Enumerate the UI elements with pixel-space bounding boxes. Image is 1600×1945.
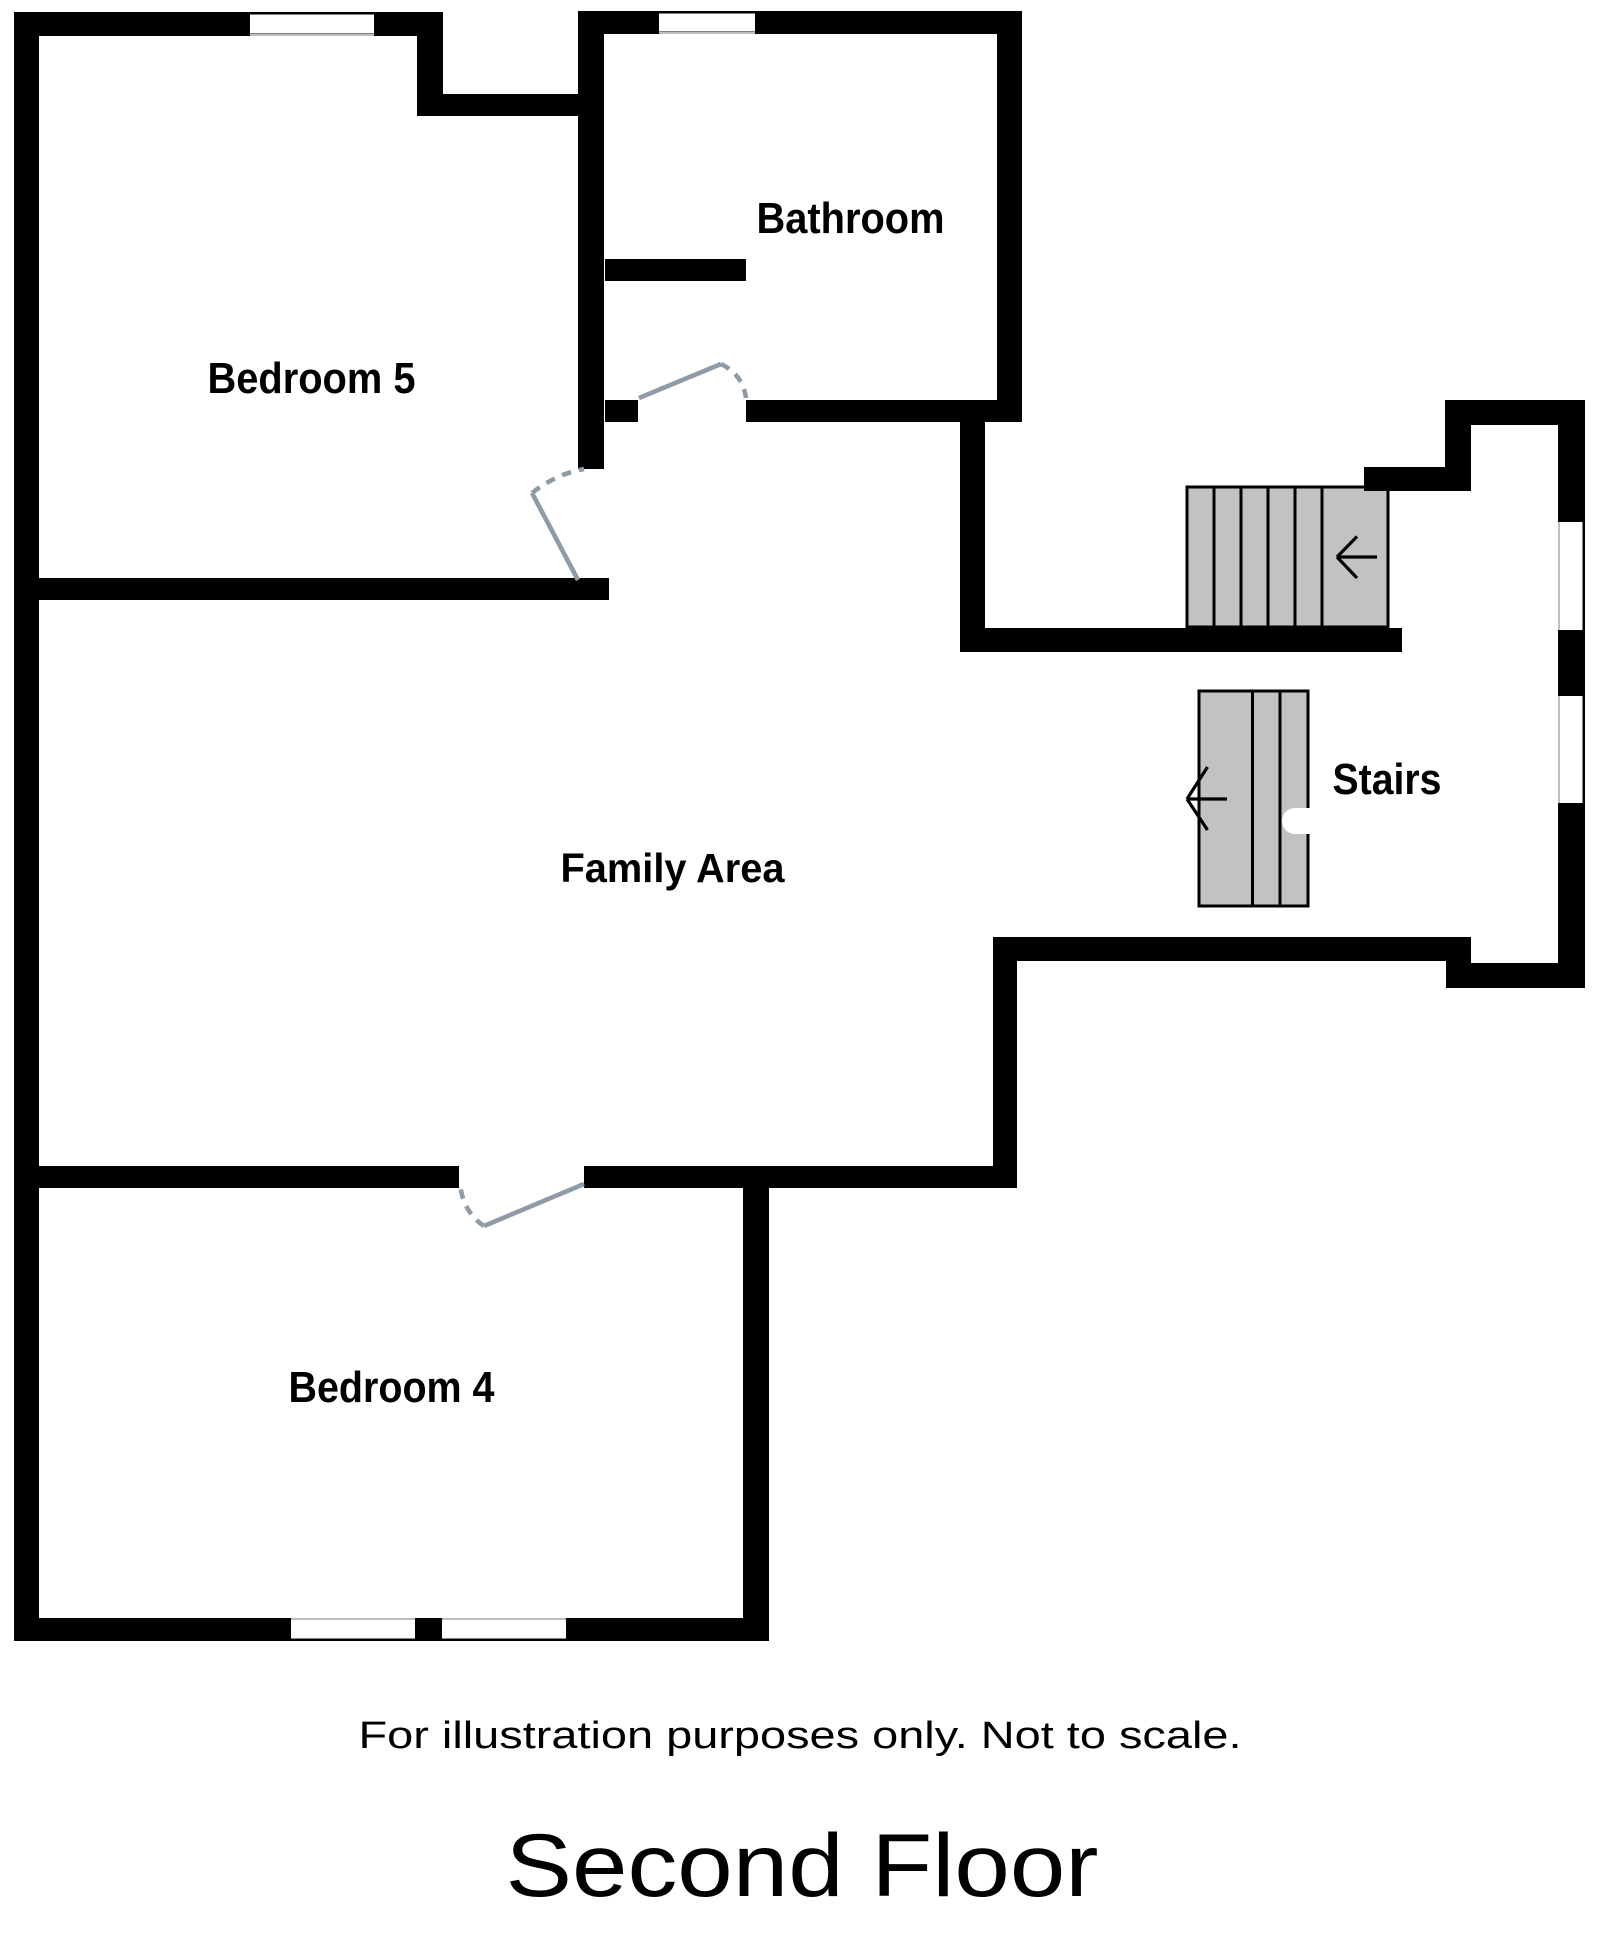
svg-text:Second Floor: Second Floor — [506, 1815, 1099, 1915]
svg-text:Stairs: Stairs — [1333, 755, 1442, 804]
svg-text:For illustration purposes only: For illustration purposes only. Not to s… — [359, 1715, 1242, 1757]
svg-text:Family Area: Family Area — [561, 845, 786, 891]
svg-text:Bathroom: Bathroom — [757, 194, 945, 243]
svg-text:Bedroom 5: Bedroom 5 — [208, 354, 416, 403]
svg-text:Bedroom 4: Bedroom 4 — [289, 1363, 495, 1412]
